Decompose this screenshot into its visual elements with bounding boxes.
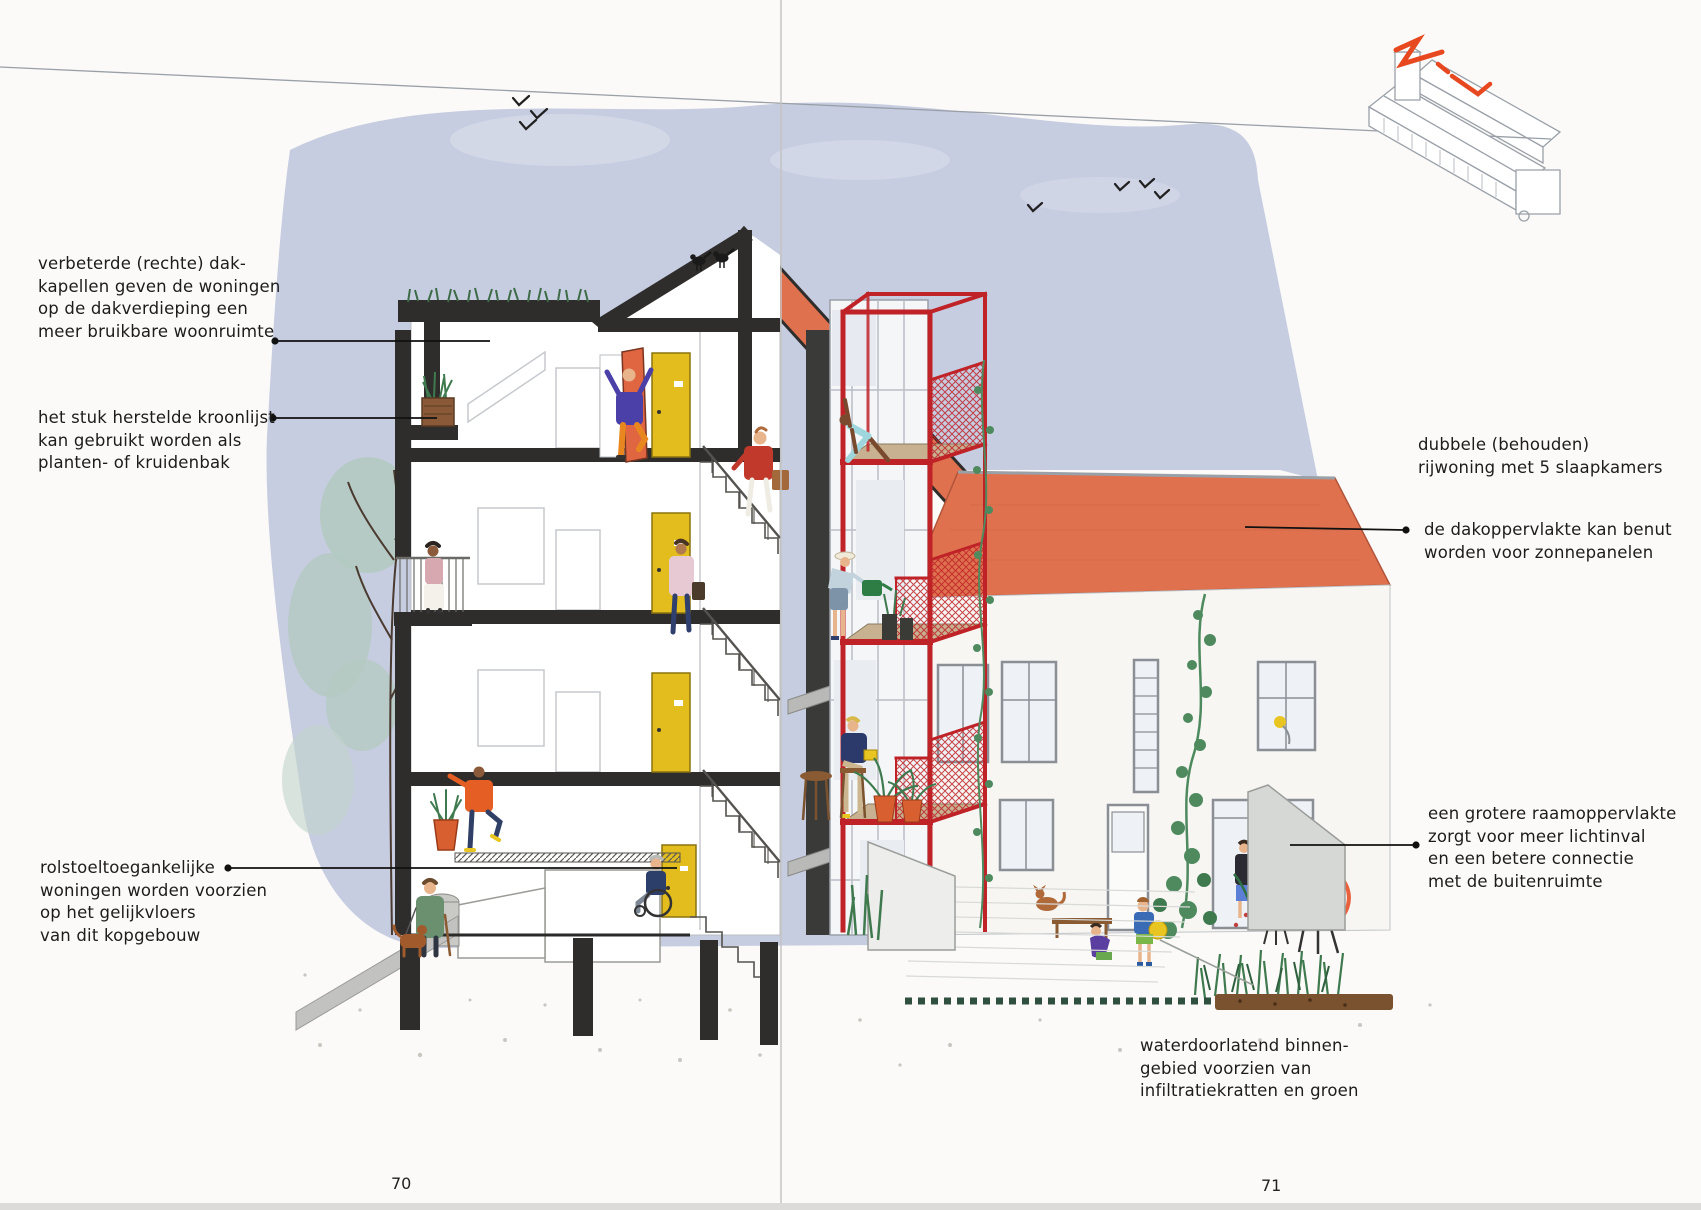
annotation-wheelchair: rolstoeltoegankelijke woningen worden vo… — [40, 857, 290, 947]
party-wall — [806, 330, 830, 935]
page-bottom-edge — [0, 1203, 1701, 1210]
section-illustration — [0, 0, 1701, 1210]
page-number-right: 71 — [1261, 1176, 1281, 1195]
window-upper-1 — [1002, 662, 1056, 762]
yellow-door-f2 — [652, 673, 690, 772]
annotation-roof-solar: de dakoppervlakte kan benut worden voor … — [1424, 519, 1684, 564]
ground-strip — [905, 994, 1393, 1010]
yellow-door-f4 — [652, 353, 690, 457]
cloud — [770, 140, 950, 180]
window-upper-2 — [1258, 662, 1315, 750]
annotation-window: een grotere raamoppervlakte zorgt voor m… — [1428, 803, 1688, 893]
annotation-rowhouse: dubbele (behouden) rijwoning met 5 slaap… — [1418, 434, 1688, 479]
annotation-courtyard: waterdoorlatend binnen- gebied voorzien … — [1140, 1035, 1400, 1103]
annotation-cornice: het stuk herstelde kroonlijst kan gebrui… — [38, 407, 288, 475]
page-number-left: 70 — [391, 1174, 411, 1193]
window-lower-1 — [1000, 800, 1053, 870]
cloud — [1020, 177, 1180, 213]
cloud — [450, 114, 670, 166]
book-spread: verbeterde (rechte) dak- kapellen geven … — [0, 0, 1701, 1210]
annotation-dormer: verbeterde (rechte) dak- kapellen geven … — [38, 253, 288, 343]
stair-window — [1134, 660, 1158, 792]
